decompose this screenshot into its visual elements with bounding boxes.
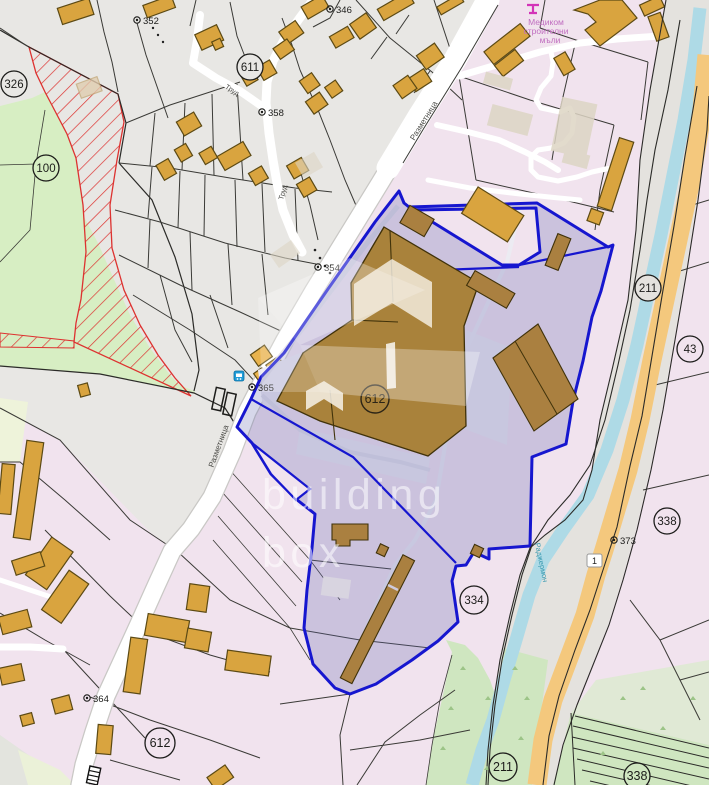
svg-text:326: 326 bbox=[4, 79, 23, 91]
svg-text:612: 612 bbox=[150, 736, 171, 750]
svg-text:100: 100 bbox=[36, 163, 55, 175]
svg-text:338: 338 bbox=[657, 516, 676, 528]
svg-text:373: 373 bbox=[620, 536, 636, 547]
svg-text:box: box bbox=[262, 529, 345, 577]
svg-text:мъли: мъли bbox=[540, 35, 561, 45]
svg-text:building: building bbox=[262, 471, 446, 519]
svg-text:352: 352 bbox=[143, 16, 159, 27]
svg-text:1: 1 bbox=[592, 556, 597, 566]
svg-text:364: 364 bbox=[93, 694, 109, 705]
svg-text:346: 346 bbox=[336, 5, 352, 16]
svg-text:211: 211 bbox=[493, 760, 513, 774]
svg-text:611: 611 bbox=[241, 62, 259, 74]
svg-text:43: 43 bbox=[684, 344, 697, 356]
svg-text:338: 338 bbox=[627, 769, 648, 783]
svg-text:211: 211 bbox=[639, 283, 657, 295]
svg-text:358: 358 bbox=[268, 108, 284, 119]
svg-text:334: 334 bbox=[464, 595, 484, 607]
